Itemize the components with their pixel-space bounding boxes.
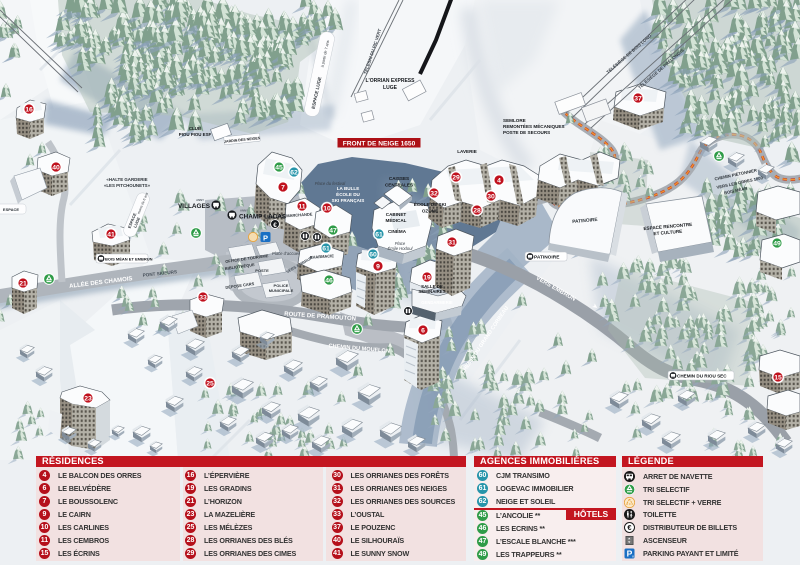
svg-text:9: 9 <box>376 263 380 270</box>
svg-text:45: 45 <box>275 164 283 171</box>
svg-text:PIOU PIOU ESF: PIOU PIOU ESF <box>179 132 212 137</box>
svg-text:Place d’accueil: Place d’accueil <box>272 251 301 256</box>
svg-text:23: 23 <box>84 395 92 402</box>
svg-text:ANNY: ANNY <box>196 198 204 202</box>
svg-text:10: 10 <box>323 205 331 212</box>
svg-text:POSTE DE SECOURS: POSTE DE SECOURS <box>503 130 550 135</box>
svg-text:ESPACE: ESPACE <box>3 207 19 212</box>
svg-text:61: 61 <box>375 231 383 238</box>
svg-text:29: 29 <box>452 174 460 181</box>
svg-text:6: 6 <box>421 327 425 334</box>
svg-text:SEMLORE: SEMLORE <box>503 118 526 123</box>
svg-text:CHAMP LACAS: CHAMP LACAS <box>239 213 287 220</box>
svg-text:ÉCOLE DU: ÉCOLE DU <box>336 190 360 197</box>
svg-text:MÉDICAL: MÉDICAL <box>386 216 407 223</box>
svg-text:LUGE: LUGE <box>383 85 398 91</box>
svg-text:LA BULLE: LA BULLE <box>337 186 360 191</box>
svg-text:«LES PITCHOUNETS»: «LES PITCHOUNETS» <box>104 183 151 188</box>
svg-text:CLUB: CLUB <box>189 126 201 131</box>
svg-text:PATINOIRE: PATINOIRE <box>534 255 560 261</box>
svg-text:CENTRALES: CENTRALES <box>385 183 413 188</box>
svg-text:CABINET: CABINET <box>386 212 407 217</box>
svg-text:ANNY: ANNY <box>240 209 248 213</box>
svg-text:60: 60 <box>369 251 377 258</box>
svg-text:46: 46 <box>325 277 333 284</box>
svg-text:Émile Hodoul: Émile Hodoul <box>388 246 414 251</box>
svg-text:62: 62 <box>290 169 298 176</box>
svg-text:ÉCOLE DE SKI: ÉCOLE DE SKI <box>414 200 446 207</box>
svg-text:P: P <box>263 233 268 242</box>
svg-text:SKI FRANÇAIS: SKI FRANÇAIS <box>332 198 365 203</box>
svg-text:BOIS MÉAN ET EMBRUN: BOIS MÉAN ET EMBRUN <box>105 257 153 262</box>
svg-text:47: 47 <box>329 227 337 234</box>
svg-text:41: 41 <box>107 231 115 238</box>
svg-text:€: € <box>273 222 277 229</box>
svg-text:POSTE: POSTE <box>255 268 269 273</box>
svg-text:CAISSES: CAISSES <box>389 176 409 181</box>
svg-text:21: 21 <box>19 280 27 287</box>
svg-text:19: 19 <box>423 274 431 281</box>
svg-text:49: 49 <box>773 240 781 247</box>
svg-text:SÉMINAIRES: SÉMINAIRES <box>418 289 445 294</box>
svg-text:25: 25 <box>206 380 214 387</box>
svg-text:L’ORRIAN EXPRESS: L’ORRIAN EXPRESS <box>366 78 416 84</box>
svg-text:61: 61 <box>322 245 330 252</box>
svg-text:LAVERIE: LAVERIE <box>457 149 477 154</box>
svg-text:FRONT DE NEIGE 1650: FRONT DE NEIGE 1650 <box>343 140 416 147</box>
svg-text:P: P <box>627 548 633 558</box>
svg-text:«HALTE GARDERIE: «HALTE GARDERIE <box>106 177 147 182</box>
svg-text:CHEMIN DU RIOU SEC: CHEMIN DU RIOU SEC <box>677 374 727 379</box>
svg-text:32: 32 <box>430 190 438 197</box>
svg-text:11: 11 <box>298 203 305 210</box>
svg-text:CINÉMA: CINÉMA <box>388 227 407 234</box>
svg-text:7: 7 <box>281 184 285 191</box>
svg-text:31: 31 <box>448 239 456 246</box>
svg-text:30: 30 <box>487 193 495 200</box>
svg-text:15: 15 <box>774 374 782 381</box>
svg-text:40: 40 <box>52 164 60 171</box>
svg-text:GENDARMERIE: GENDARMERIE <box>421 300 453 305</box>
svg-text:4: 4 <box>497 177 501 184</box>
svg-text:REMONTÉES MÉCANIQUES: REMONTÉES MÉCANIQUES <box>503 122 565 129</box>
svg-text:16: 16 <box>25 106 33 113</box>
svg-text:MUNICIPALE: MUNICIPALE <box>269 288 294 293</box>
svg-text:33: 33 <box>199 294 207 301</box>
svg-text:28: 28 <box>473 207 481 214</box>
svg-text:OZONE: OZONE <box>422 209 438 214</box>
svg-text:VILLAGES: VILLAGES <box>178 203 211 210</box>
svg-text:37: 37 <box>634 95 642 102</box>
